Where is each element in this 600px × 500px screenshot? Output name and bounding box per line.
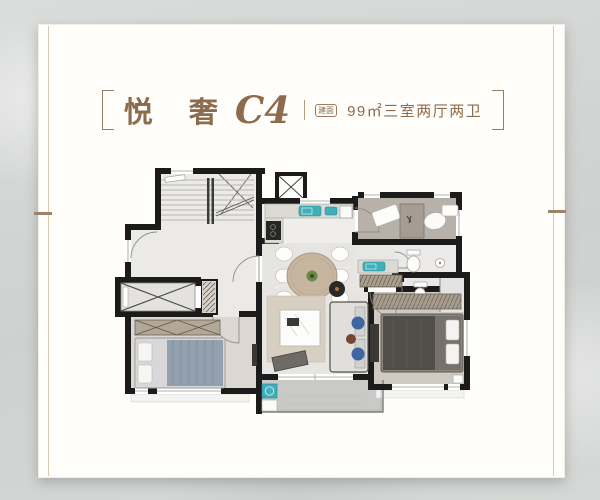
balcony-cabinet xyxy=(262,400,277,411)
wardrobe xyxy=(135,320,220,335)
toilet xyxy=(407,256,420,272)
page-background: 悦 奢 C4 建面 99㎡三室两厅两卫 xyxy=(0,0,600,500)
blue-pillow xyxy=(352,317,365,330)
floorplan-drawing xyxy=(115,168,480,418)
duct-box xyxy=(279,176,303,198)
pillow xyxy=(138,365,152,383)
plan-header: 悦 奢 C4 建面 99㎡三室两厅两卫 xyxy=(58,88,548,132)
right-deco-tick xyxy=(548,210,566,213)
bed-cover xyxy=(167,340,223,386)
sofa xyxy=(330,302,368,372)
fridge xyxy=(340,206,352,218)
pillow xyxy=(138,343,152,361)
nightstand xyxy=(453,375,463,383)
study-desk xyxy=(400,204,424,238)
left-deco-line xyxy=(48,26,49,476)
service-shaft xyxy=(201,280,217,314)
area-text: 99㎡三室两厅两卫 xyxy=(347,100,482,121)
master-bedroom xyxy=(370,294,463,383)
pillow xyxy=(446,320,459,340)
area-badge: 建面 xyxy=(315,104,337,117)
title-bracket-right-icon xyxy=(492,90,504,130)
washing-machine xyxy=(262,384,277,398)
table-tray xyxy=(287,318,299,326)
bed-bench xyxy=(370,324,379,362)
plan-model: C4 xyxy=(235,88,290,132)
title-bracket-left-icon xyxy=(102,90,114,130)
coffee-table xyxy=(280,310,320,346)
tv xyxy=(252,344,257,366)
dish-rack xyxy=(325,207,337,215)
stove xyxy=(266,221,281,240)
balcony xyxy=(262,384,277,411)
right-deco-line xyxy=(553,26,554,476)
accent-pillow xyxy=(346,334,356,344)
pillow xyxy=(446,344,459,364)
header-divider xyxy=(304,100,305,120)
blanket xyxy=(383,316,435,370)
blue-pillow xyxy=(352,348,365,361)
left-deco-tick xyxy=(34,212,52,215)
plan-title: 悦 奢 xyxy=(124,89,231,131)
